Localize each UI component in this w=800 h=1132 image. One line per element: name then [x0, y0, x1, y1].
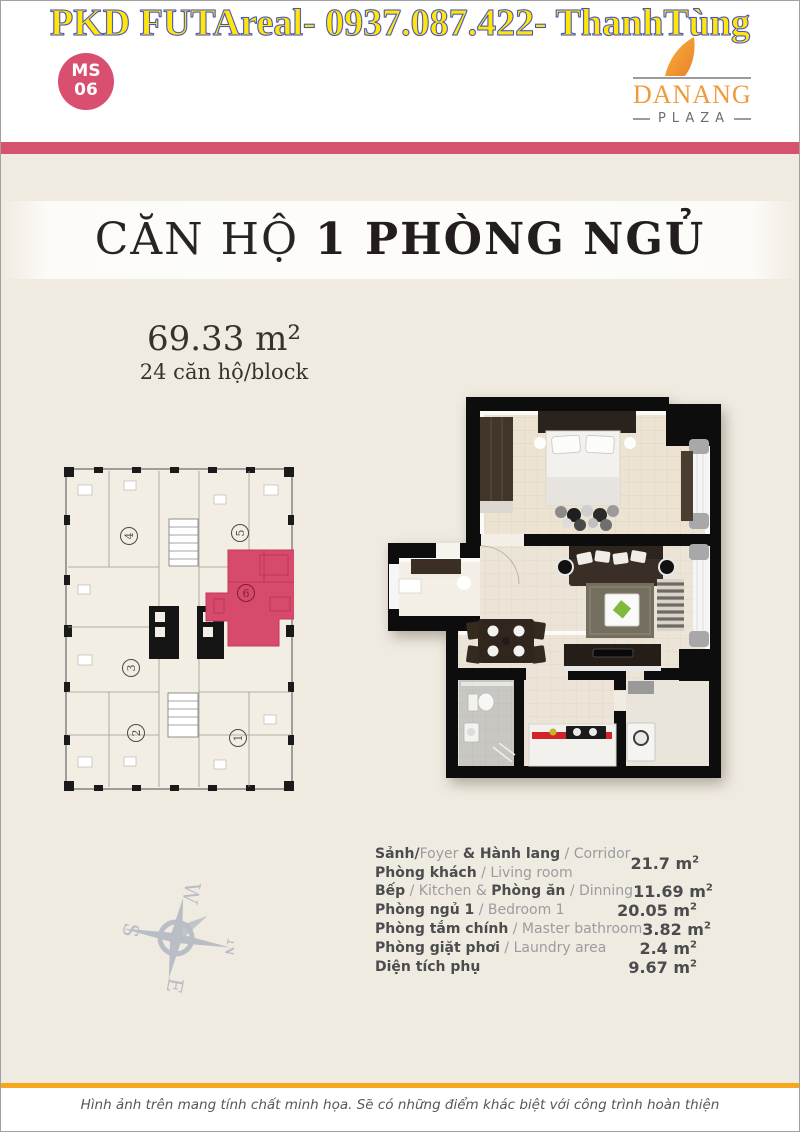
table-row: Bếp / Kitchen & Phòng ăn / Dinning11.69 …: [375, 882, 697, 901]
room-area-value: 20.05 m2: [609, 901, 697, 920]
table-row: Sảnh/Foyer & Hành lang / CorridorPhòng k…: [375, 845, 697, 882]
units-per-block: 24 căn hộ/block: [89, 359, 359, 385]
unit-number-3: 3: [125, 665, 138, 672]
room-label: Phòng tắm chính / Master bathroom: [375, 920, 642, 939]
foyer-cabinet: [411, 559, 461, 574]
sail-icon: [633, 37, 751, 77]
apartment-3d-plan: [381, 391, 726, 791]
toilet: [478, 693, 494, 711]
unit-number-2: 2: [130, 730, 143, 737]
bedside-lamp: [624, 437, 636, 449]
unit-number-6: 6: [243, 587, 250, 600]
room-area-value: 3.82 m2: [642, 920, 711, 939]
compass-letter-w: W: [177, 880, 204, 906]
room-label: Phòng giặt phơi / Laundry area: [375, 939, 609, 958]
logo-brand: DANANG: [633, 79, 751, 111]
area-info: 69.33 m² 24 căn hộ/block: [89, 319, 359, 385]
badge-line-ms: MS: [58, 62, 114, 81]
unit-number-1: 1: [232, 735, 245, 742]
table-row: Phòng ngủ 1 / Bedroom 120.05 m2: [375, 901, 697, 920]
compass-letter-s: S: [119, 921, 144, 939]
unit-number-4: 4: [123, 533, 136, 540]
logo-sub: PLAZA: [654, 111, 730, 126]
title-band: CĂN HỘ 1 PHÒNG NGỦ: [1, 201, 799, 279]
cooktop: [566, 726, 606, 739]
room-areas-table: Sảnh/Foyer & Hành lang / CorridorPhòng k…: [375, 845, 697, 977]
danang-plaza-logo: DANANG PLAZA: [633, 37, 751, 126]
table-row: Phòng giặt phơi / Laundry area2.4 m2: [375, 939, 697, 958]
side-lamp: [557, 559, 573, 575]
badge-line-06: 06: [58, 81, 114, 100]
bed-headboard: [538, 411, 636, 433]
bedside-lamp: [534, 437, 546, 449]
flyer-page: PKD FUTAreal- 0937.087.422- ThanhTùng MS…: [0, 0, 800, 1132]
room-label: Phòng ngủ 1 / Bedroom 1: [375, 901, 609, 920]
room-area-value: 11.69 m2: [633, 882, 713, 901]
table-row: Diện tích phụ9.67 m2: [375, 958, 697, 977]
apartment-size: 69.33 m²: [89, 319, 359, 359]
compass-rose: NESW: [119, 861, 234, 1013]
logo-rule-right: [734, 118, 751, 120]
page-title-normal: CĂN HỘ: [95, 214, 315, 265]
room-area-value: 2.4 m2: [609, 939, 697, 958]
logo-rule-left: [633, 118, 650, 120]
room-label: Sảnh/Foyer & Hành lang / CorridorPhòng k…: [375, 845, 630, 882]
wardrobe: [480, 417, 513, 501]
building-key-plan: 456321: [64, 467, 294, 791]
room-label: Diện tích phụ: [375, 958, 609, 977]
compass-letter-n: N: [220, 937, 234, 959]
bedroom-window: [681, 439, 709, 529]
page-title-bold: 1 PHÒNG NGỦ: [315, 214, 705, 265]
side-lamp: [659, 559, 675, 575]
unit-number-5: 5: [234, 530, 247, 537]
kitchen: [529, 724, 616, 766]
unit-code-badge: MS 06: [58, 53, 114, 110]
pink-stripe: [1, 142, 799, 154]
footer: Hình ảnh trên mang tính chất minh họa. S…: [1, 1088, 799, 1132]
logo-subrow: PLAZA: [633, 111, 751, 126]
room-label: Bếp / Kitchen & Phòng ăn / Dinning: [375, 882, 633, 901]
compass-letter-e: E: [162, 976, 188, 995]
room-area-value: 21.7 m2: [630, 854, 699, 873]
disclaimer-text: Hình ảnh trên mang tính chất minh họa. S…: [1, 1097, 799, 1113]
table-row: Phòng tắm chính / Master bathroom3.82 m2: [375, 920, 697, 939]
room-area-value: 9.67 m2: [609, 958, 697, 977]
ceiling-light: [457, 576, 471, 590]
striped-daybed: [657, 579, 684, 631]
